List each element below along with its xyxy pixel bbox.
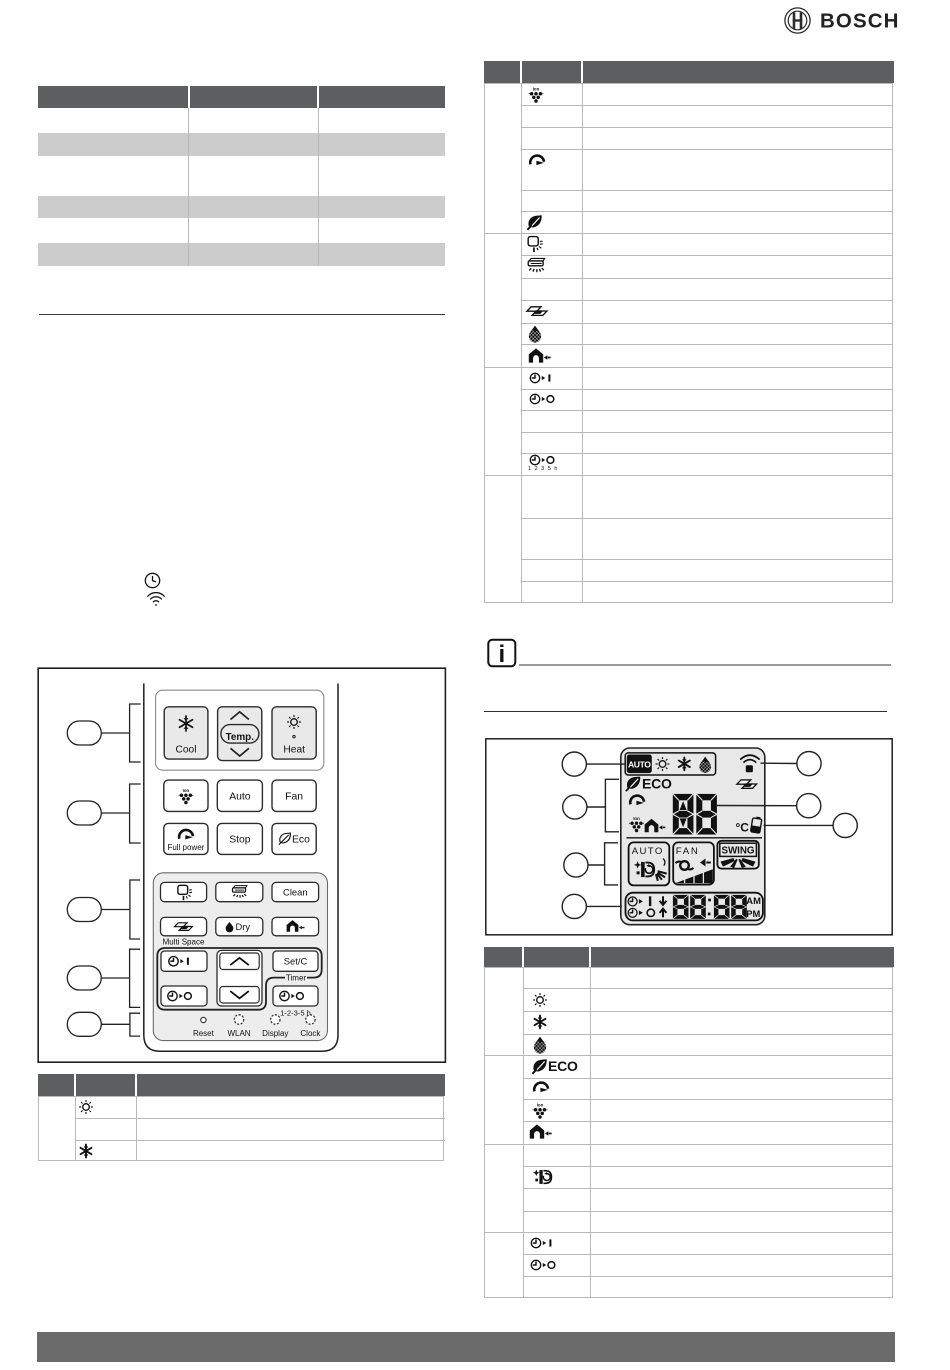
svg-text:Cool: Cool bbox=[176, 745, 197, 756]
svg-text:ECO: ECO bbox=[548, 1058, 578, 1074]
svg-text:Dry: Dry bbox=[236, 921, 251, 932]
svg-text:i: i bbox=[498, 641, 505, 668]
svg-text:AUTO: AUTO bbox=[628, 760, 651, 770]
svg-text:Set/C: Set/C bbox=[284, 955, 308, 966]
svg-text:SWING: SWING bbox=[722, 846, 755, 857]
svg-text:Temp.: Temp. bbox=[226, 732, 255, 743]
svg-text:Eco: Eco bbox=[292, 835, 310, 846]
svg-text:Stop: Stop bbox=[229, 835, 251, 846]
svg-text:°C: °C bbox=[736, 821, 750, 835]
svg-text:Reset: Reset bbox=[193, 1029, 215, 1038]
svg-text:WLAN: WLAN bbox=[227, 1029, 250, 1038]
svg-text:ECO: ECO bbox=[642, 775, 672, 791]
svg-text:Clock: Clock bbox=[300, 1029, 321, 1038]
svg-text:Full power: Full power bbox=[167, 843, 204, 852]
svg-text:Fan: Fan bbox=[285, 792, 303, 803]
svg-text:AUTO: AUTO bbox=[632, 846, 663, 857]
svg-text:AM: AM bbox=[746, 895, 761, 906]
svg-text:Timer: Timer bbox=[286, 973, 306, 982]
svg-text:Display: Display bbox=[262, 1029, 288, 1038]
svg-text:Heat: Heat bbox=[283, 745, 305, 756]
svg-text:Auto: Auto bbox=[229, 792, 251, 803]
svg-text:PM: PM bbox=[746, 908, 760, 919]
svg-text:Clean: Clean bbox=[283, 887, 308, 898]
svg-text:BOSCH: BOSCH bbox=[820, 10, 900, 33]
svg-text:1-2-3-5 h: 1-2-3-5 h bbox=[280, 1008, 311, 1017]
svg-text:FAN: FAN bbox=[676, 846, 698, 857]
svg-text:Multi Space: Multi Space bbox=[163, 938, 205, 947]
